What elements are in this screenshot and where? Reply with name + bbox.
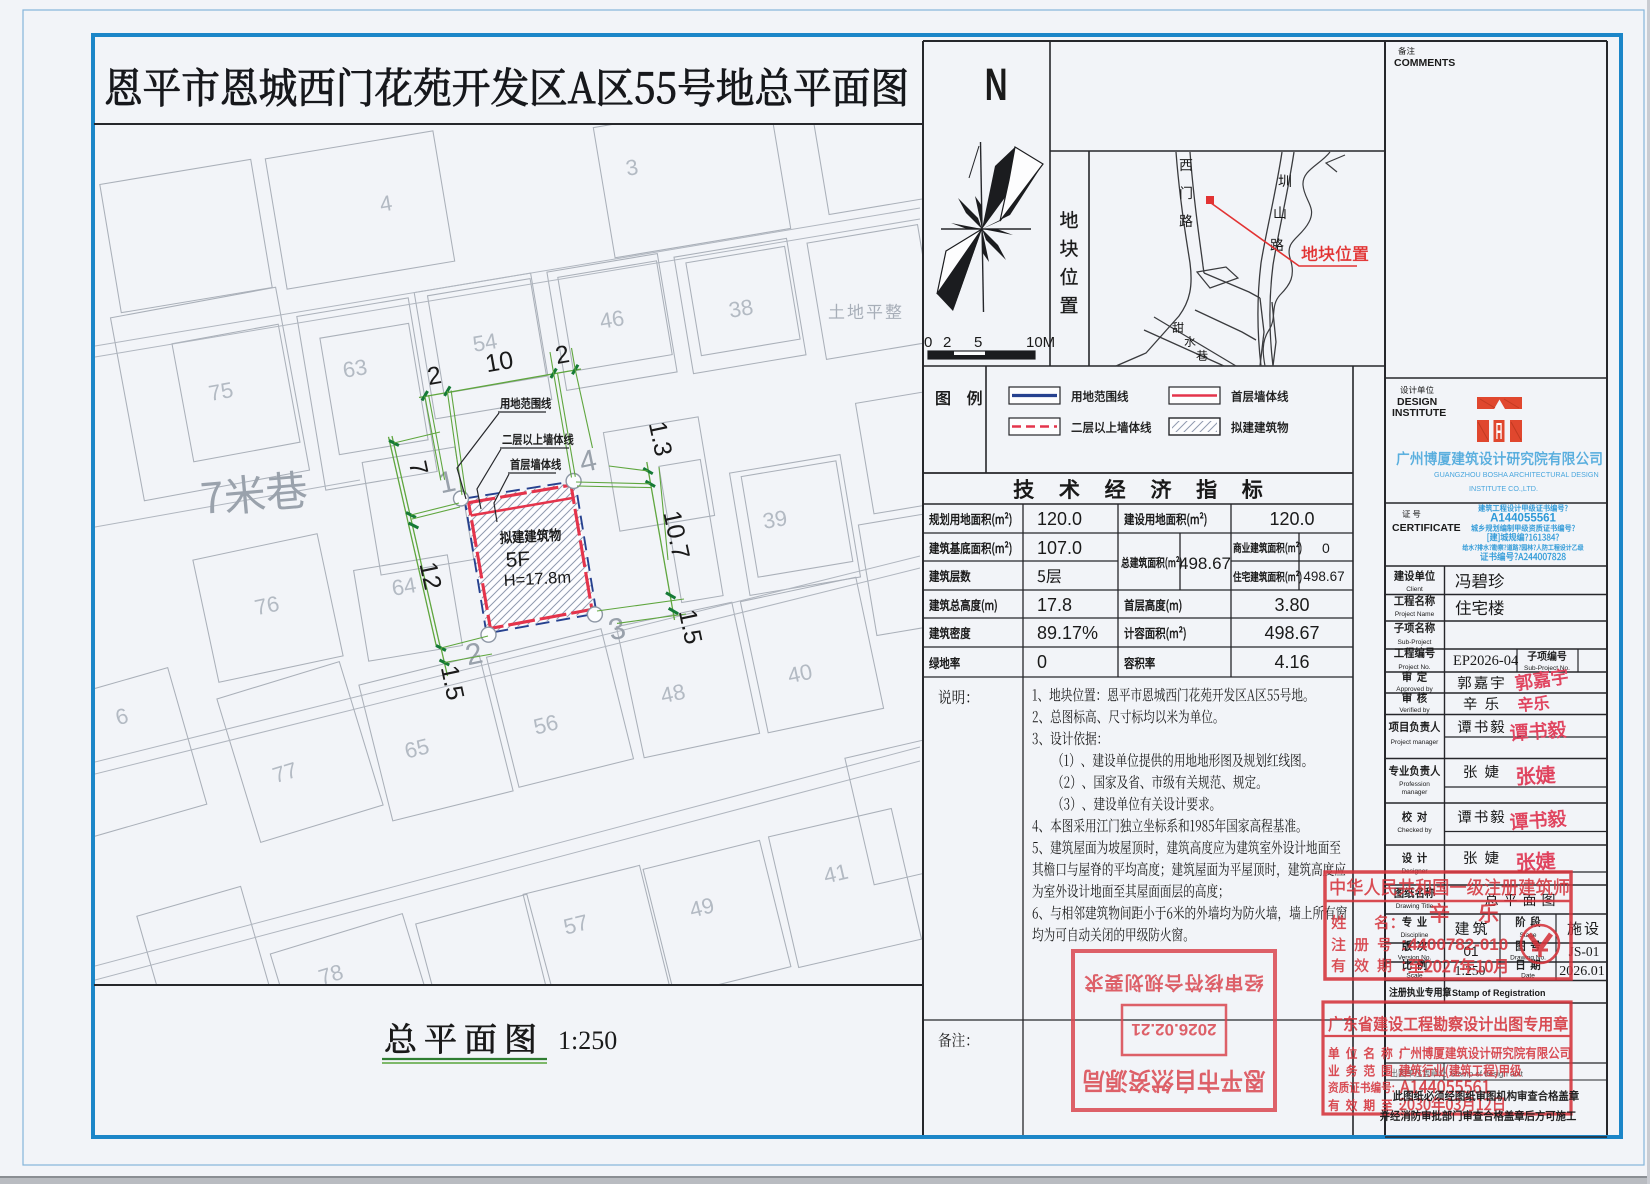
svg-text:38: 38 [727,294,755,323]
svg-text:10: 10 [483,346,515,378]
svg-text:Sub-Project: Sub-Project [1398,639,1432,646]
svg-text:0: 0 [924,334,932,351]
svg-text:INSTITUTE: INSTITUTE [1392,407,1446,419]
svg-text:75: 75 [207,377,236,406]
svg-text:48: 48 [658,679,687,709]
svg-text:Approved by: Approved by [1396,686,1433,693]
svg-text:2026.02.21: 2026.02.21 [1131,1020,1216,1039]
svg-text:63: 63 [341,354,369,383]
svg-text:120.0: 120.0 [1037,509,1082,529]
svg-text:Stamp of Registration: Stamp of Registration [1452,988,1546,998]
svg-text:12: 12 [414,559,447,592]
svg-text:Profession: Profession [1399,781,1430,788]
svg-text:498.67: 498.67 [1179,554,1231,573]
svg-text:76: 76 [252,591,281,621]
svg-text:EP2026-04: EP2026-04 [1453,653,1519,669]
svg-text:4.16: 4.16 [1274,652,1309,672]
svg-text:39: 39 [761,505,789,534]
svg-text:2026.01: 2026.01 [1559,964,1605,979]
svg-text:0: 0 [1322,540,1330,556]
svg-text:manager: manager [1402,789,1428,796]
svg-text:17.8: 17.8 [1037,595,1072,615]
svg-text:JS-01: JS-01 [1569,944,1600,959]
svg-text:INSTITUTE CO.,LTD.: INSTITUTE CO.,LTD. [1469,484,1538,493]
svg-text:N: N [985,61,1008,111]
svg-text:40: 40 [785,659,814,689]
svg-text:3.80: 3.80 [1274,595,1309,615]
svg-text:Verified by: Verified by [1399,707,1430,714]
svg-text:Client: Client [1406,586,1423,593]
svg-text:Project manager: Project manager [1391,739,1440,746]
svg-text:0: 0 [1037,652,1047,672]
svg-text:120.0: 120.0 [1269,509,1314,529]
svg-text:89.17%: 89.17% [1037,623,1098,643]
svg-text:107.0: 107.0 [1037,538,1082,558]
svg-text:Project Name: Project Name [1395,611,1435,618]
svg-text:498.67: 498.67 [1303,569,1344,584]
svg-text:46: 46 [598,305,626,334]
svg-text:GUANGZHOU BOSHA ARCHITECTURAL: GUANGZHOU BOSHA ARCHITECTURAL DESIGN [1434,470,1599,479]
svg-text:Drawing Title: Drawing Title [1396,903,1434,910]
svg-text:A144055561: A144055561 [1490,513,1556,525]
svg-text:Checked by: Checked by [1397,827,1432,834]
svg-text:2: 2 [943,334,951,351]
svg-text:5F: 5F [505,548,531,572]
svg-text:64: 64 [390,572,418,601]
svg-text:4400782-010: 4400782-010 [1408,935,1508,954]
svg-text:Project No.: Project No. [1398,664,1430,671]
svg-text:COMMENTS: COMMENTS [1394,57,1455,69]
svg-text:H=17.8m: H=17.8m [503,568,571,590]
svg-text:5: 5 [974,334,982,351]
svg-text:498.67: 498.67 [1264,623,1319,643]
svg-text:CERTIFICATE: CERTIFICATE [1392,522,1461,534]
svg-text:10M: 10M [1026,334,1055,351]
svg-text:1:250: 1:250 [558,1026,617,1055]
